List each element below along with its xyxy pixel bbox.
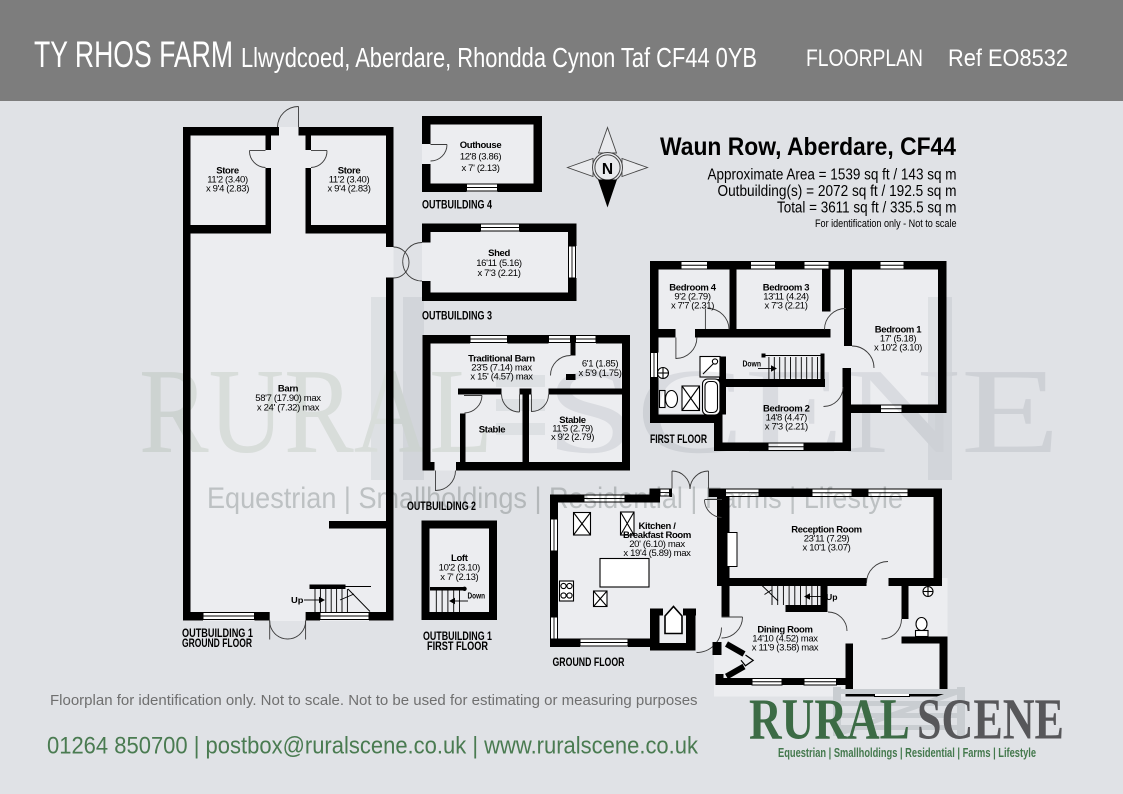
svg-text:Floorplan for identification o: Floorplan for identification only. Not t… [50, 692, 698, 709]
svg-text:SCENE: SCENE [917, 688, 1064, 752]
svg-text:RURAL: RURAL [749, 688, 910, 752]
svg-text:01264 850700 | postbox@ruralsc: 01264 850700 | postbox@ruralscene.co.uk … [47, 733, 699, 760]
svg-text:Equestrian | Smallholdings | R: Equestrian | Smallholdings | Residential… [778, 746, 1036, 760]
